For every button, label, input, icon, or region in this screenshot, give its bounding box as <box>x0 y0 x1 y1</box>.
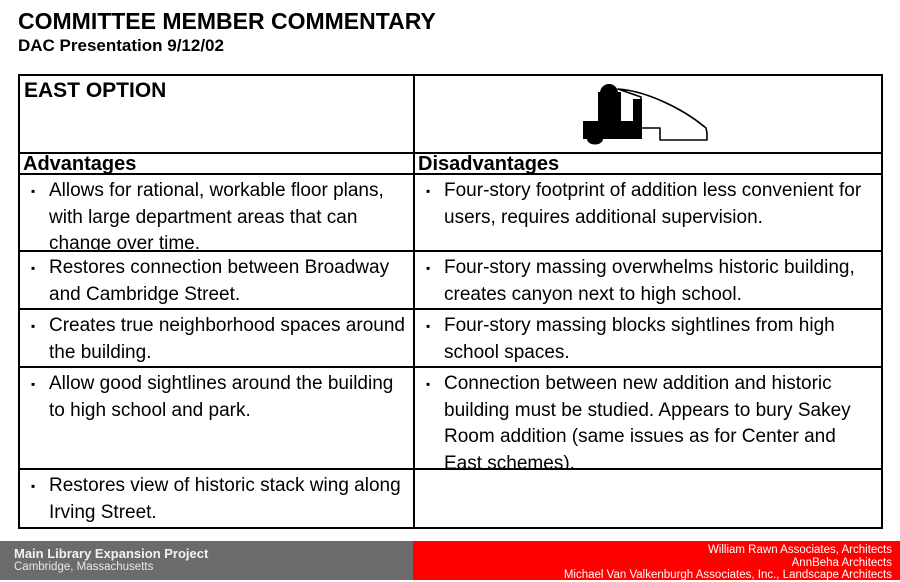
disadvantage-cell-1: ▪ Four-story footprint of addition less … <box>415 173 881 250</box>
east-option-site-plan-icon <box>583 83 713 145</box>
slide-title: COMMITTEE MEMBER COMMENTARY <box>18 8 436 34</box>
disadvantage-text-1: Four-story footprint of addition less co… <box>444 178 881 231</box>
bullet-icon: ▪ <box>31 255 49 281</box>
advantage-text-2: Restores connection between Broadway and… <box>49 255 413 308</box>
advantage-cell-3: ▪ Creates true neighborhood spaces aroun… <box>20 308 415 366</box>
slide-subtitle: DAC Presentation 9/12/02 <box>18 36 436 56</box>
disadvantage-cell-5 <box>415 468 881 527</box>
disadvantage-cell-2: ▪ Four-story massing overwhelms historic… <box>415 250 881 308</box>
presentation-slide: COMMITTEE MEMBER COMMENTARY DAC Presenta… <box>0 0 900 582</box>
disadvantage-cell-3: ▪ Four-story massing blocks sightlines f… <box>415 308 881 366</box>
bullet-icon: ▪ <box>426 313 444 339</box>
footer-credit-line-1: William Rawn Associates, Architects <box>413 544 892 557</box>
footer-credits-bar: William Rawn Associates, Architects AnnB… <box>413 541 900 580</box>
plan-icon-cell <box>415 76 881 152</box>
advantage-cell-1: ▪ Allows for rational, workable floor pl… <box>20 173 415 250</box>
option-comparison-table: EAST OPTION Advantages Disadvantages ▪ A… <box>18 74 883 529</box>
bullet-icon: ▪ <box>31 371 49 397</box>
advantages-header: Advantages <box>20 152 415 173</box>
bullet-icon: ▪ <box>426 178 444 204</box>
advantage-cell-2: ▪ Restores connection between Broadway a… <box>20 250 415 308</box>
advantage-text-3: Creates true neighborhood spaces around … <box>49 313 413 366</box>
bullet-icon: ▪ <box>31 313 49 339</box>
footer-project-bar: Main Library Expansion Project Cambridge… <box>0 541 413 580</box>
advantage-cell-4: ▪ Allow good sightlines around the build… <box>20 366 415 468</box>
bullet-icon: ▪ <box>31 178 49 204</box>
advantage-text-5: Restores view of historic stack wing alo… <box>49 473 413 526</box>
disadvantage-cell-4: ▪ Connection between new addition and hi… <box>415 366 881 468</box>
disadvantages-header: Disadvantages <box>415 152 881 173</box>
disadvantage-text-2: Four-story massing overwhelms historic b… <box>444 255 881 308</box>
footer-project-name: Main Library Expansion Project <box>14 546 413 561</box>
bullet-icon: ▪ <box>31 473 49 499</box>
advantage-cell-5: ▪ Restores view of historic stack wing a… <box>20 468 415 527</box>
footer-credit-line-2: AnnBeha Architects <box>413 557 892 570</box>
option-title: EAST OPTION <box>24 79 166 102</box>
advantage-text-1: Allows for rational, workable floor plan… <box>49 178 413 250</box>
advantage-text-4: Allow good sightlines around the buildin… <box>49 371 413 424</box>
option-title-cell: EAST OPTION <box>20 76 415 152</box>
bullet-icon: ▪ <box>426 371 444 397</box>
footer-credit-line-3: Michael Van Valkenburgh Associates, Inc.… <box>413 569 892 582</box>
disadvantage-text-4: Connection between new addition and hist… <box>444 371 881 468</box>
bullet-icon: ▪ <box>426 255 444 281</box>
disadvantage-text-3: Four-story massing blocks sightlines fro… <box>444 313 881 366</box>
slide-header: COMMITTEE MEMBER COMMENTARY DAC Presenta… <box>18 8 436 56</box>
footer-project-location: Cambridge, Massachusetts <box>14 561 413 574</box>
